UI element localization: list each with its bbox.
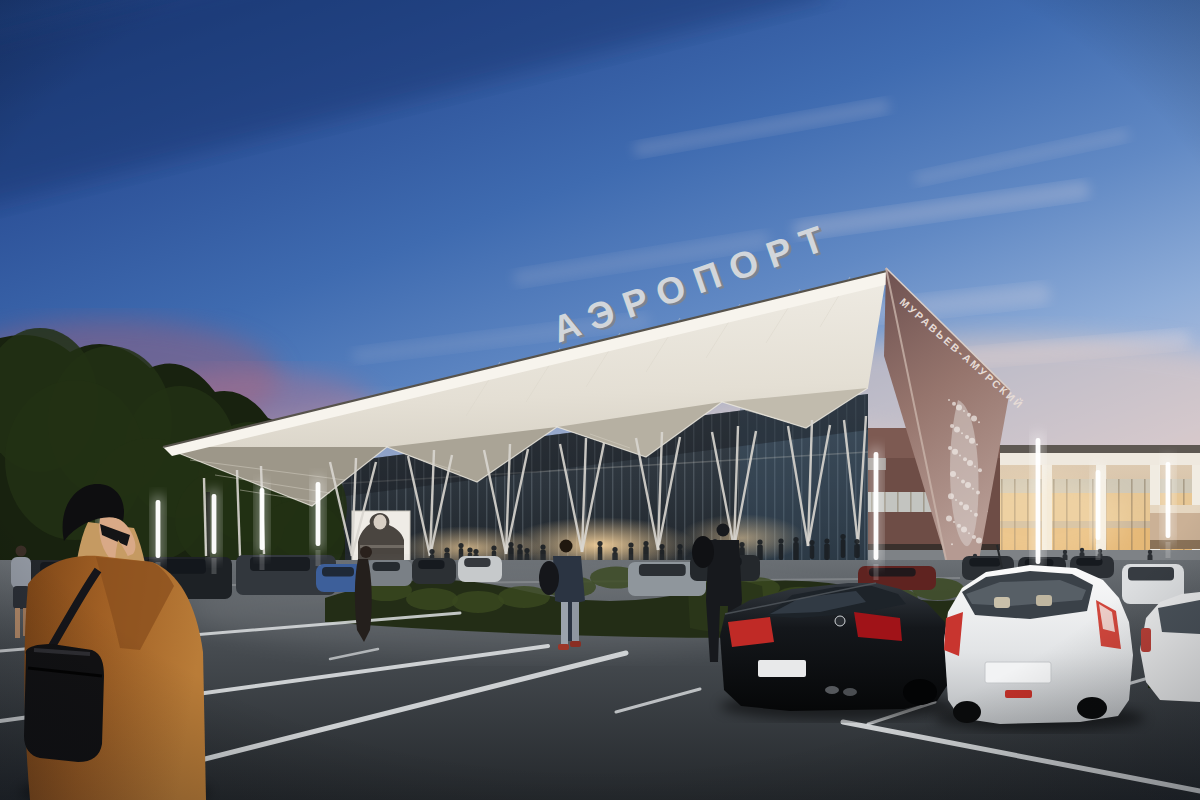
scene-canvas: АЭРОПОРТ АЭРОПОРТ МУРАВЬЕВ-АМУРСКИЙ bbox=[0, 0, 1200, 800]
rendering-photo: АЭРОПОРТ АЭРОПОРТ МУРАВЬЕВ-АМУРСКИЙ bbox=[0, 0, 1200, 800]
vignette bbox=[0, 0, 1200, 800]
